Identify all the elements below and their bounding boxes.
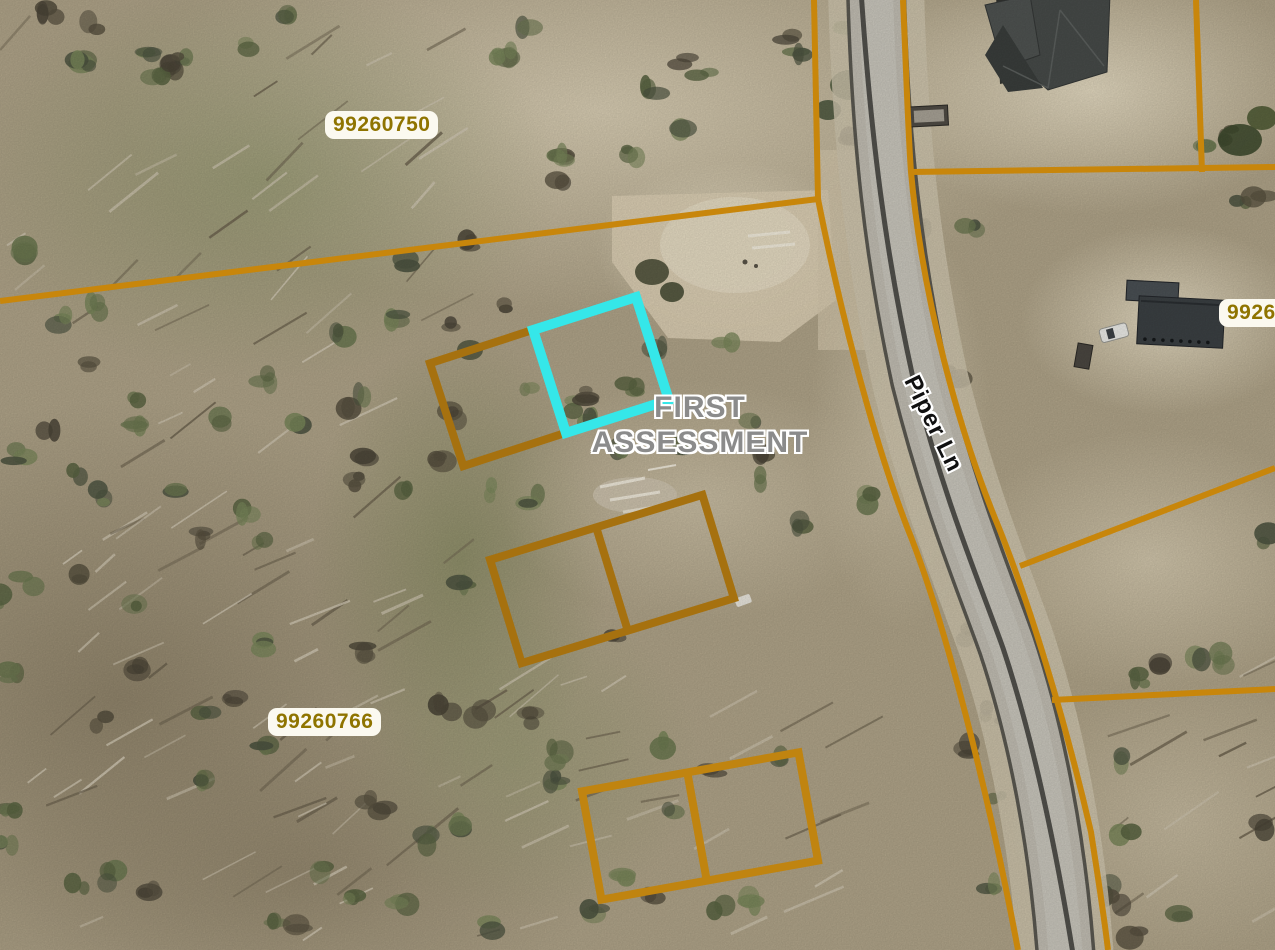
plat-name-line1: FIRST bbox=[490, 390, 910, 425]
plat-name-line2: ASSESSMENT bbox=[490, 425, 910, 460]
parcel-boundary-line-road-east bbox=[903, 0, 1108, 950]
parcel-id-text: 99260766 bbox=[276, 710, 373, 733]
parcel-id-label-99260766: 99260766 bbox=[268, 708, 381, 736]
parcel-id-label-99260750: 99260750 bbox=[325, 111, 438, 139]
lot-divider-line bbox=[687, 772, 706, 880]
parcel-boundary-line bbox=[0, 199, 818, 301]
parcel-id-text: 99260750 bbox=[333, 113, 430, 136]
lot-divider-line bbox=[596, 527, 628, 630]
parcel-boundary-line-road-west bbox=[818, 199, 1018, 950]
parcel-boundary-line bbox=[1196, 0, 1202, 172]
parcel-boundary-line bbox=[814, 0, 818, 199]
parcel-boundary-line bbox=[1020, 468, 1275, 566]
parcel-id-text: 9926 bbox=[1227, 301, 1275, 324]
parcel-layer bbox=[0, 0, 1275, 950]
map-viewport[interactable]: 99260750 99260766 9926 FIRST ASSESSMENT … bbox=[0, 0, 1275, 950]
parcel-boundary-line bbox=[1052, 689, 1275, 700]
plat-name-label: FIRST ASSESSMENT bbox=[490, 390, 910, 460]
parcel-id-label-clipped: 9926 bbox=[1219, 299, 1275, 327]
parcel-boundary-line bbox=[911, 167, 1275, 172]
